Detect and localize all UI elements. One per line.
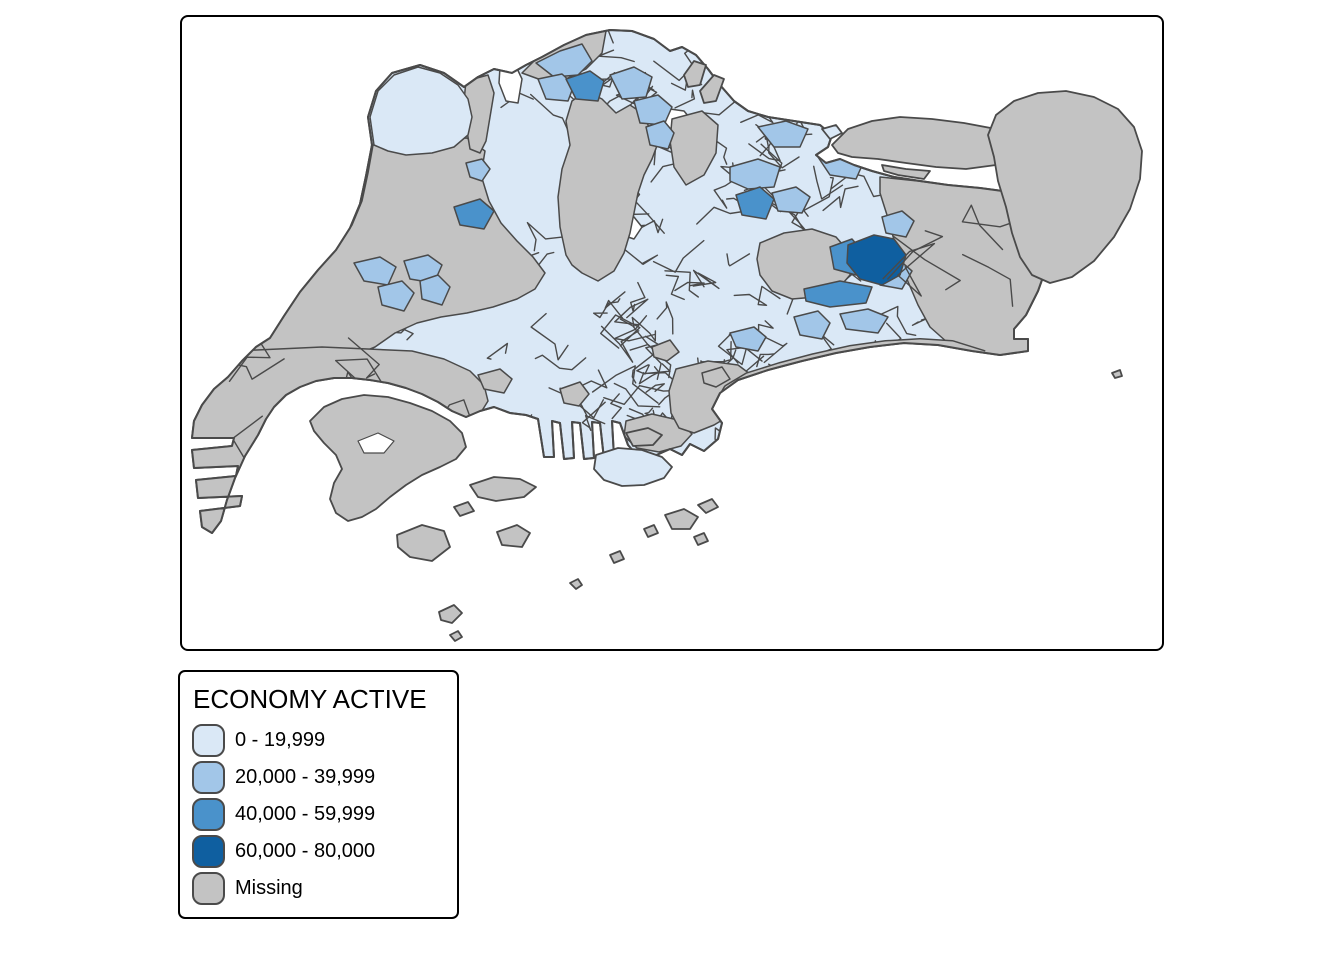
- legend-item: 40,000 - 59,999: [192, 798, 445, 831]
- subzone-boundary: [729, 402, 741, 423]
- island-islet-east-speck: [1112, 370, 1122, 378]
- island-kusu-island: [694, 533, 708, 545]
- legend-label: 40,000 - 59,999: [235, 803, 375, 826]
- legend-item: 20,000 - 39,999: [192, 761, 445, 794]
- legend-label: 60,000 - 80,000: [235, 840, 375, 863]
- legend-label: 0 - 19,999: [235, 729, 325, 752]
- island-jurong-island: [310, 395, 466, 521]
- island-pulau-bukom: [470, 477, 536, 501]
- island-islet-south-b: [450, 631, 462, 641]
- legend-swatch-class4: [192, 835, 225, 868]
- subzone-boundary: [797, 370, 818, 378]
- island-sisters-islands: [644, 525, 658, 537]
- legend-swatch-missing: [192, 872, 225, 905]
- legend-label: Missing: [235, 877, 303, 900]
- legend-title: ECONOMY ACTIVE: [193, 684, 445, 714]
- island-pulau-jong: [610, 551, 624, 563]
- legend-box: ECONOMY ACTIVE 0 - 19,99920,000 - 39,999…: [178, 670, 459, 919]
- subzone-boundary: [757, 406, 780, 434]
- island-islet-south-a: [439, 605, 462, 623]
- legend-swatch-class2: [192, 761, 225, 794]
- legend-swatch-class1: [192, 724, 225, 757]
- singapore-choropleth-map: [182, 17, 1162, 649]
- legend-label: 20,000 - 39,999: [235, 766, 375, 789]
- legend-item: 60,000 - 80,000: [192, 835, 445, 868]
- legend-swatch-class3: [192, 798, 225, 831]
- subzone-boundary: [734, 385, 794, 444]
- island-islet-south-c: [570, 579, 582, 589]
- subzone-boundary: [734, 402, 756, 430]
- legend-item: 0 - 19,999: [192, 724, 445, 757]
- island-bukom-kechil: [454, 502, 474, 516]
- legend-item: Missing: [192, 872, 445, 905]
- island-st-johns-island: [665, 509, 698, 529]
- subzone-boundary: [865, 348, 890, 373]
- map-frame: [180, 15, 1164, 651]
- island-pulau-sebarok: [497, 525, 530, 547]
- legend-items: 0 - 19,99920,000 - 39,99940,000 - 59,999…: [192, 724, 445, 905]
- island-pulau-semakau: [397, 525, 450, 561]
- subzone-boundary: [496, 415, 532, 454]
- island-lazarus-island: [698, 499, 718, 513]
